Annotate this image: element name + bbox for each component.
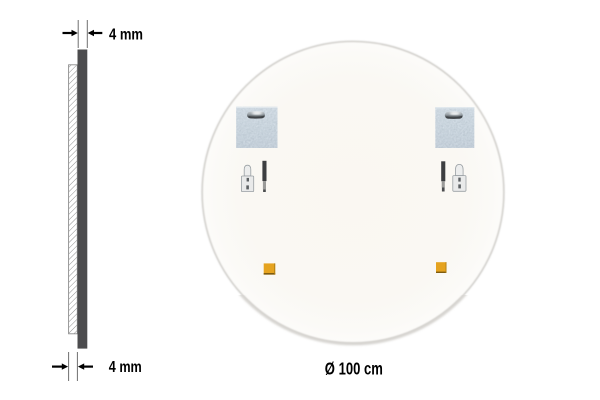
svg-text:4 mm: 4 mm [109, 359, 142, 376]
svg-text:Ø 100 cm: Ø 100 cm [325, 359, 383, 379]
svg-text:4 mm: 4 mm [109, 27, 143, 44]
